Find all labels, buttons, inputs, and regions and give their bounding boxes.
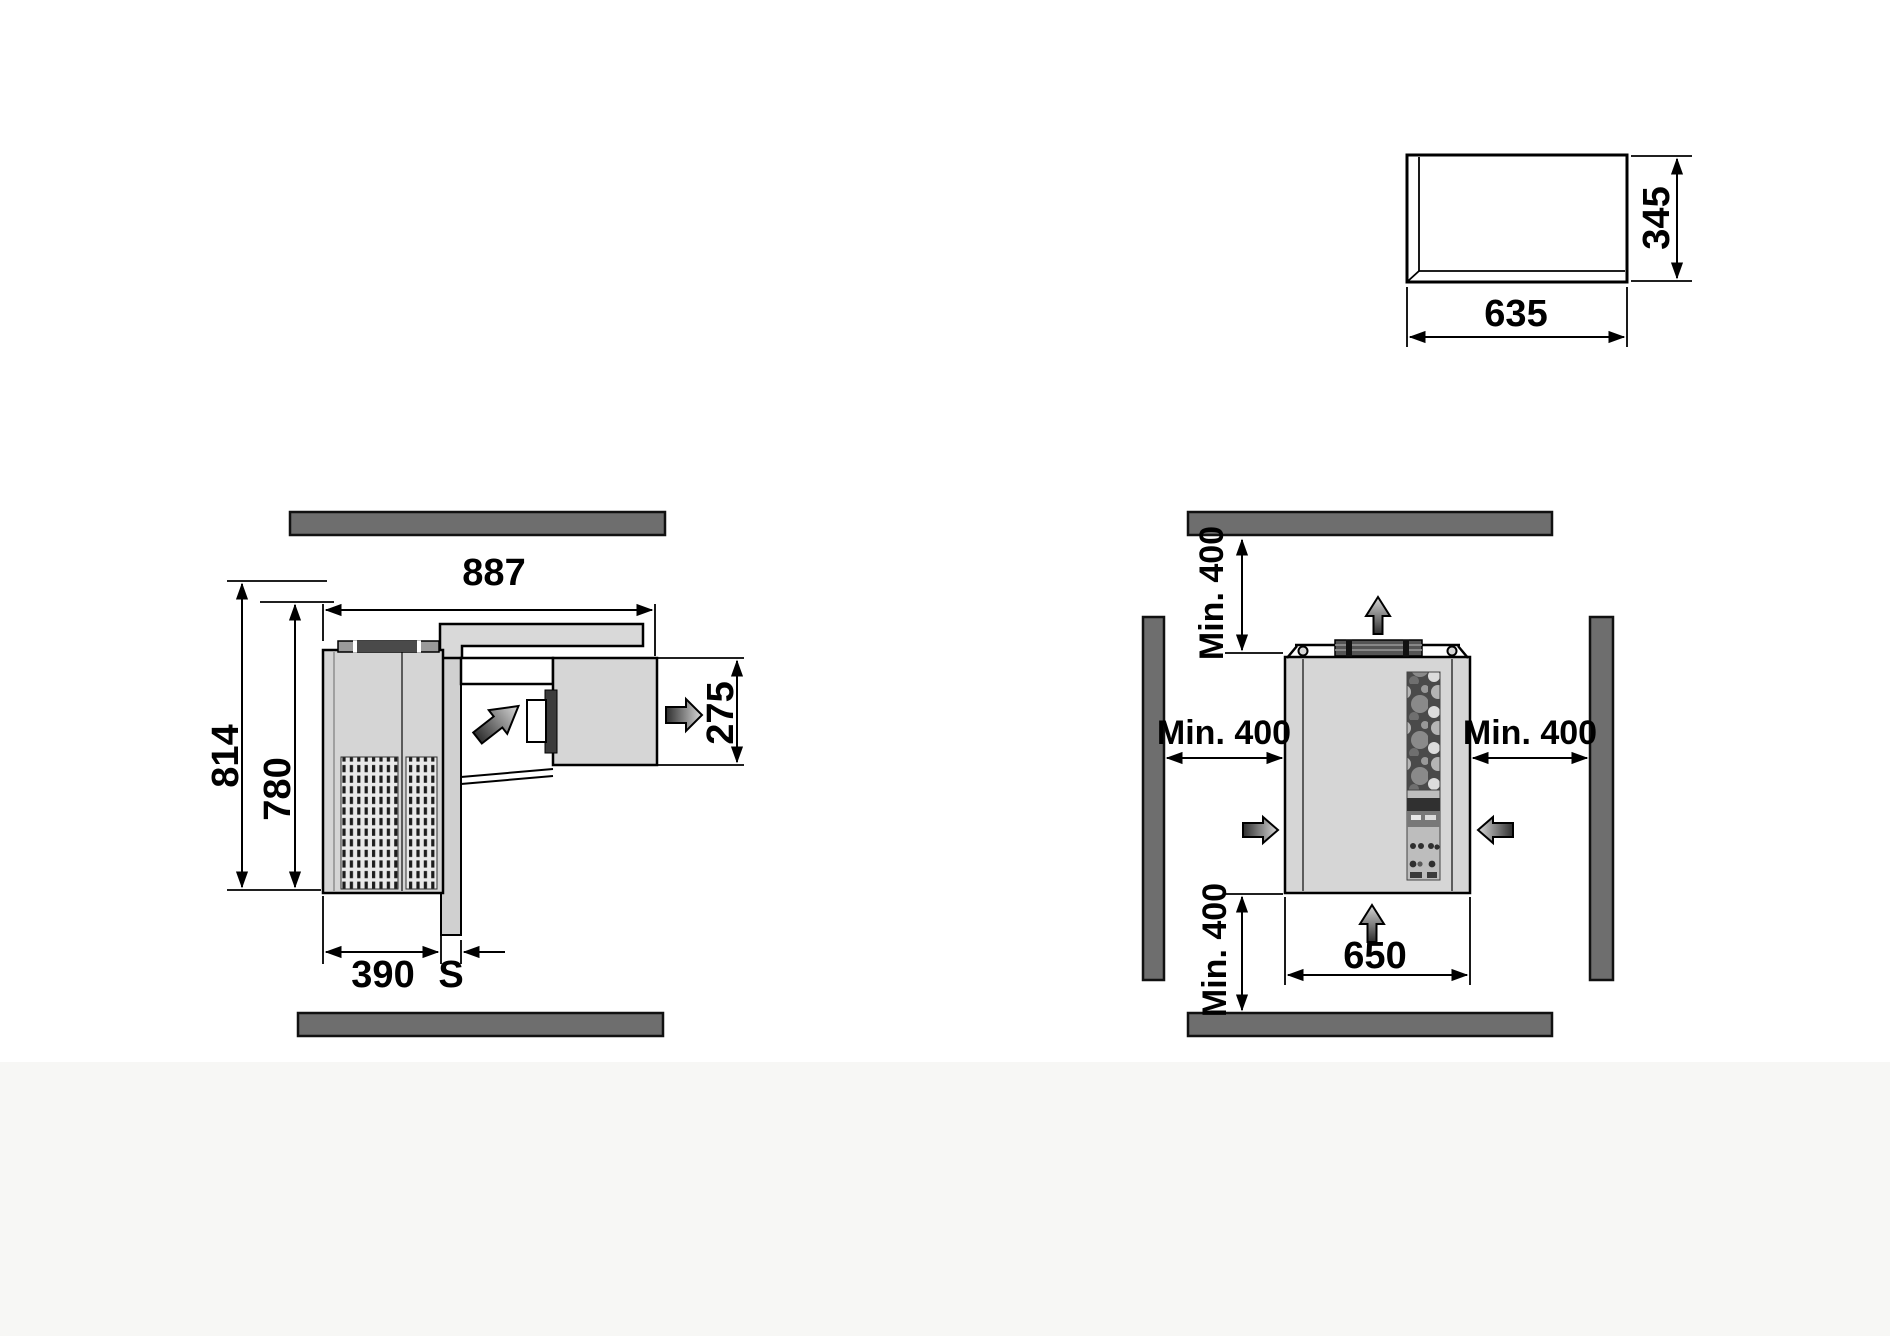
- clearance-left-label: Min. 400: [1157, 714, 1291, 752]
- dim-635: 635: [1407, 287, 1627, 347]
- airflow-diagonal-arrow: [468, 694, 527, 750]
- dim-780-label: 780: [257, 757, 299, 820]
- dim-390-label: 390: [351, 954, 414, 996]
- dim-clearance-top: Min. 400: [1193, 526, 1283, 660]
- dim-887-label: 887: [462, 552, 525, 594]
- plan-top-wall: [1188, 512, 1552, 535]
- dim-650-label: 650: [1343, 935, 1406, 977]
- dim-clearance-left: Min. 400: [1157, 714, 1291, 758]
- open-door-line-2: [461, 776, 553, 784]
- side-section-view: 887 814 780 390 S: [205, 512, 744, 1036]
- unit-top-cap-dark-band: [357, 641, 417, 652]
- plan-cap-notch-right: [1403, 640, 1409, 657]
- clearance-right-label: Min. 400: [1463, 714, 1597, 752]
- dim-635-label: 635: [1484, 293, 1547, 335]
- unit-through-wall-arm: [461, 658, 553, 684]
- airflow-left-arrow: [1478, 817, 1513, 843]
- open-door-line-1: [461, 769, 553, 777]
- ventilation-grille: [341, 757, 437, 889]
- dim-345: 345: [1631, 156, 1692, 281]
- airflow-right-arrow: [1243, 817, 1278, 843]
- dim-275-label: 275: [700, 681, 742, 744]
- ceiling-panel: [440, 624, 643, 658]
- plan-unit: [1285, 640, 1470, 894]
- plan-bottom-wall: [1188, 1013, 1552, 1036]
- plan-unit-screw-left: [1299, 647, 1308, 656]
- dim-390: 390: [323, 896, 441, 996]
- cap-notch-right: [417, 641, 421, 653]
- dim-814: 814: [205, 581, 327, 887]
- dim-S-label: S: [438, 954, 463, 996]
- dim-650: 650: [1285, 897, 1470, 985]
- front-view: 345 635: [1407, 155, 1692, 347]
- clearance-top-label: Min. 400: [1193, 526, 1231, 660]
- front-view-outline: [1407, 155, 1627, 282]
- technical-drawing-page: 887 814 780 390 S: [0, 0, 1890, 1336]
- plan-unit-screw-right: [1448, 647, 1457, 656]
- dim-814-label: 814: [205, 724, 247, 787]
- cap-notch-left: [353, 641, 357, 653]
- plan-cap-notch-left: [1346, 640, 1352, 657]
- airflow-up-arrow-top: [1366, 597, 1390, 634]
- airflow-exhaust-arrow: [666, 699, 702, 731]
- evaporator-box: [553, 658, 657, 765]
- top-plan-view: Min. 400 Min. 400 Min. 400 Min. 400 650: [1143, 512, 1613, 1036]
- dim-345-label: 345: [1636, 186, 1678, 249]
- fan-swirl-strip: [1407, 672, 1440, 790]
- dim-clearance-right: Min. 400: [1463, 714, 1597, 758]
- monoblock-installation-drawing: 887 814 780 390 S: [0, 0, 1890, 1336]
- clearance-bottom-label: Min. 400: [1196, 883, 1234, 1017]
- dim-S: S: [438, 940, 505, 996]
- side-view-bottom-wall: [298, 1013, 663, 1036]
- plan-left-wall: [1143, 617, 1164, 980]
- side-view-top-wall: [290, 512, 665, 535]
- dim-clearance-bottom: Min. 400: [1196, 883, 1283, 1017]
- evaporator-bracket: [527, 700, 546, 742]
- page-footer-band: [0, 1062, 1890, 1336]
- control-panel: [1407, 790, 1440, 880]
- plan-right-wall: [1590, 617, 1613, 980]
